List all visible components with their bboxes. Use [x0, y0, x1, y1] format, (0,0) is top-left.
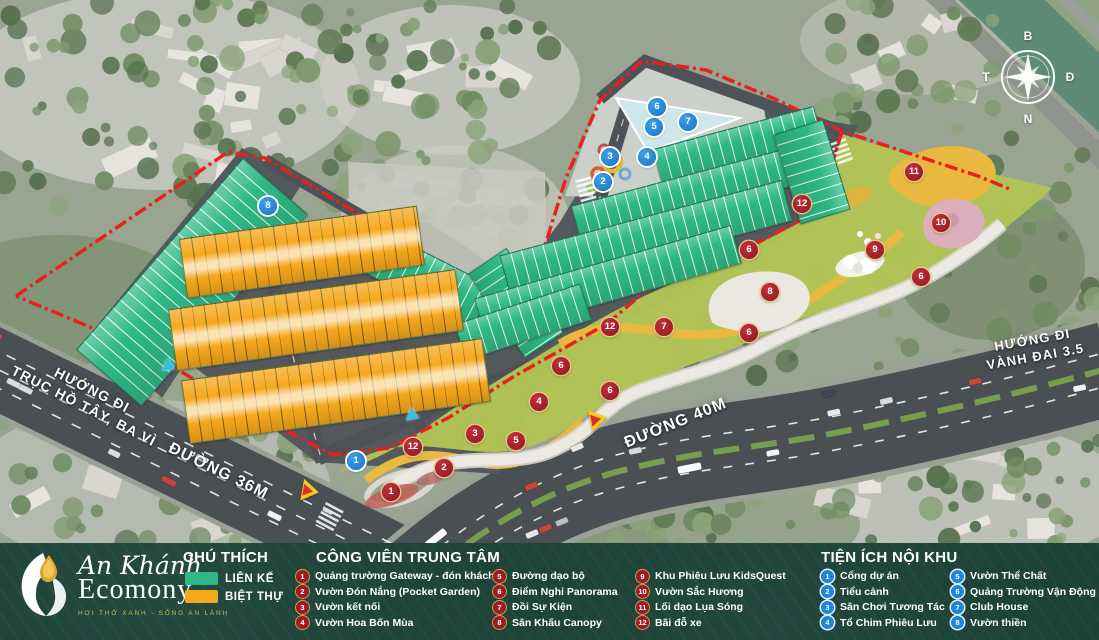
masterplan-canvas: 1234566666789101112121212345678 HƯỚNG ĐI…: [0, 0, 1099, 640]
compass-east: Đ: [1066, 70, 1075, 84]
legend-list-item: 9Khu Phiêu Lưu KidsQuest: [636, 570, 786, 583]
legend-item-label: Sân Chơi Tương Tác: [840, 601, 945, 613]
legend-list-item: 7Club House: [951, 601, 1096, 614]
legend-item-bietthu: BIỆT THỰ: [185, 590, 283, 603]
legend-bar: An Khánh Ecomony HƠI THỞ XANH - SỐNG AN …: [0, 543, 1099, 640]
legend-list-item: 6Quảng Trường Vận Động: [951, 586, 1096, 599]
legend-item-label: Vườn thiền: [970, 617, 1026, 629]
park-legend-title: CÔNG VIÊN TRUNG TÂM: [316, 549, 500, 566]
legend-item-label: Quảng Trường Vận Động: [970, 586, 1096, 598]
legend-item-label: Tổ Chim Phiêu Lưu: [840, 617, 937, 629]
lienke-color-swatch: [185, 572, 218, 585]
legend-number-badge: 1: [296, 570, 309, 583]
compass-west: T: [982, 70, 989, 84]
site-map: [0, 0, 1099, 560]
legend-number-badge: 6: [951, 585, 964, 598]
amenity-legend-title: TIỆN ÍCH NỘI KHU: [821, 549, 957, 566]
legend-list-item: 11Lối dạo Lụa Sóng: [636, 601, 786, 614]
legend-number-badge: 9: [636, 570, 649, 583]
legend-number-badge: 11: [636, 601, 649, 614]
legend-number-badge: 3: [296, 601, 309, 614]
bietthu-color-swatch: [185, 590, 218, 603]
legend-item-label: Đồi Sự Kiện: [512, 601, 572, 613]
legend-number-badge: 5: [493, 570, 506, 583]
legend-item-label: Sân Khấu Canopy: [512, 617, 602, 629]
compass-north: B: [1024, 29, 1033, 43]
legend-item-label: Vườn Thể Chất: [970, 570, 1046, 582]
legend-number-badge: 2: [821, 585, 834, 598]
legend-list-item: 8Vườn thiền: [951, 617, 1096, 630]
legend-item-label: Vườn Hoa Bốn Mùa: [315, 617, 413, 629]
legend-item-label: Đường dạo bộ: [512, 570, 585, 582]
legend-number-badge: 4: [296, 616, 309, 629]
legend-column: 5Đường dạo bộ6Điểm Nghỉ Panorama7Đồi Sự …: [493, 570, 618, 632]
legend-list-item: 3Vườn kết nối: [296, 601, 495, 614]
legend-column: 9Khu Phiêu Lưu KidsQuest10Vườn Sắc Hương…: [636, 570, 786, 632]
legend-list-item: 4Vườn Hoa Bốn Mùa: [296, 617, 495, 630]
legend-number-badge: 5: [951, 570, 964, 583]
legend-item-label: Vườn Sắc Hương: [655, 586, 743, 598]
legend-item-label: Lối dạo Lụa Sóng: [655, 601, 743, 613]
legend-list-item: 5Vườn Thể Chất: [951, 570, 1096, 583]
legend-list-item: 10Vườn Sắc Hương: [636, 586, 786, 599]
legend-list-item: 2Vườn Đón Nắng (Pocket Garden): [296, 586, 495, 599]
compass-south: N: [1024, 112, 1033, 126]
legend-list-item: 2Tiểu cảnh: [821, 586, 945, 599]
logo-leaf-icon: [18, 551, 70, 619]
legend-item-label: Tiểu cảnh: [840, 586, 889, 598]
legend-number-badge: 12: [636, 616, 649, 629]
project-tagline: HƠI THỞ XANH - SỐNG AN LÀNH: [78, 610, 229, 617]
legend-item-label: Vườn Đón Nắng (Pocket Garden): [315, 586, 480, 598]
legend-column: 5Vườn Thể Chất6Quảng Trường Vận Động7Clu…: [951, 570, 1096, 632]
lienke-label: LIÊN KẾ: [225, 573, 274, 585]
legend-number-badge: 1: [821, 570, 834, 583]
legend-item-label: Khu Phiêu Lưu KidsQuest: [655, 570, 786, 582]
legend-list-item: 8Sân Khấu Canopy: [493, 617, 618, 630]
legend-list-item: 5Đường dạo bộ: [493, 570, 618, 583]
legend-list-item: 3Sân Chơi Tương Tác: [821, 601, 945, 614]
legend-item-label: Bãi đỗ xe: [655, 617, 702, 629]
legend-number-badge: 8: [951, 616, 964, 629]
legend-item-label: Vườn kết nối: [315, 601, 380, 613]
legend-column: 1Quảng trường Gateway - đón khách2Vườn Đ…: [296, 570, 495, 632]
legend-title: CHÚ THÍCH: [183, 549, 268, 566]
legend-list-item: 1Quảng trường Gateway - đón khách: [296, 570, 495, 583]
legend-number-badge: 3: [821, 601, 834, 614]
legend-number-badge: 8: [493, 616, 506, 629]
legend-list-item: 12Bãi đỗ xe: [636, 617, 786, 630]
legend-number-badge: 10: [636, 585, 649, 598]
legend-list-item: 7Đồi Sự Kiện: [493, 601, 618, 614]
legend-number-badge: 7: [951, 601, 964, 614]
legend-number-badge: 2: [296, 585, 309, 598]
legend-list-item: 6Điểm Nghỉ Panorama: [493, 586, 618, 599]
bietthu-label: BIỆT THỰ: [225, 591, 283, 603]
compass-star: [996, 45, 1060, 109]
legend-number-badge: 7: [493, 601, 506, 614]
legend-list-item: 1Cổng dự án: [821, 570, 945, 583]
legend-column: 1Cổng dự án2Tiểu cảnh3Sân Chơi Tương Tác…: [821, 570, 945, 632]
legend-number-badge: 4: [821, 616, 834, 629]
legend-item-label: Club House: [970, 601, 1028, 613]
legend-number-badge: 6: [493, 585, 506, 598]
legend-item-lienke: LIÊN KẾ: [185, 572, 274, 585]
legend-item-label: Điểm Nghỉ Panorama: [512, 586, 618, 598]
legend-list-item: 4Tổ Chim Phiêu Lưu: [821, 617, 945, 630]
legend-item-label: Cổng dự án: [840, 570, 899, 582]
legend-item-label: Quảng trường Gateway - đón khách: [315, 570, 495, 582]
